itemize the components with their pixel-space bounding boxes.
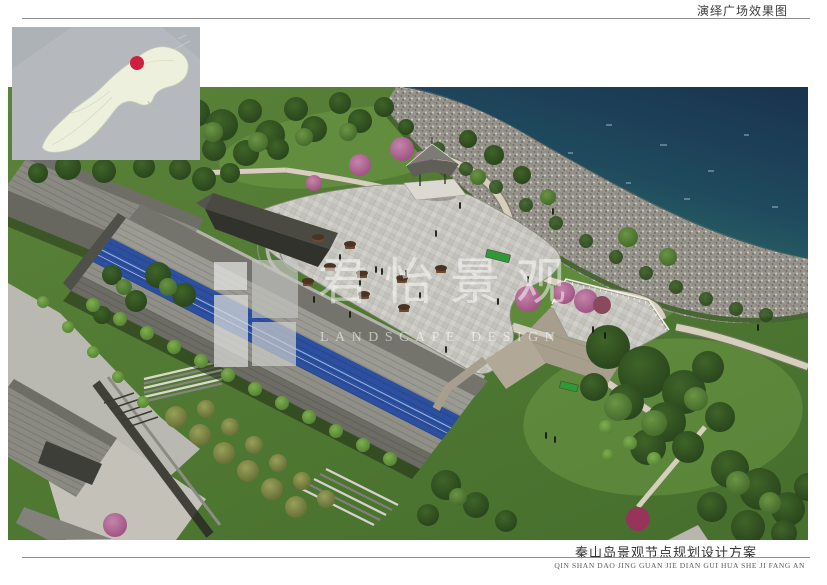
site-location-map	[12, 27, 200, 160]
drawing-title: 演绎广场效果图	[697, 2, 788, 19]
location-marker-dot	[130, 56, 144, 70]
magenta-shrub	[626, 507, 650, 531]
project-title-pinyin: QIN SHAN DAO JING GUAN JIE DIAN GUI HUA …	[554, 561, 805, 570]
red-leaf-tree	[593, 296, 611, 314]
footer-rule	[22, 557, 810, 558]
presentation-sheet: 演绎广场效果图	[0, 0, 827, 585]
header-rule	[22, 18, 810, 19]
project-title: 秦山岛景观节点规划设计方案	[575, 542, 757, 561]
